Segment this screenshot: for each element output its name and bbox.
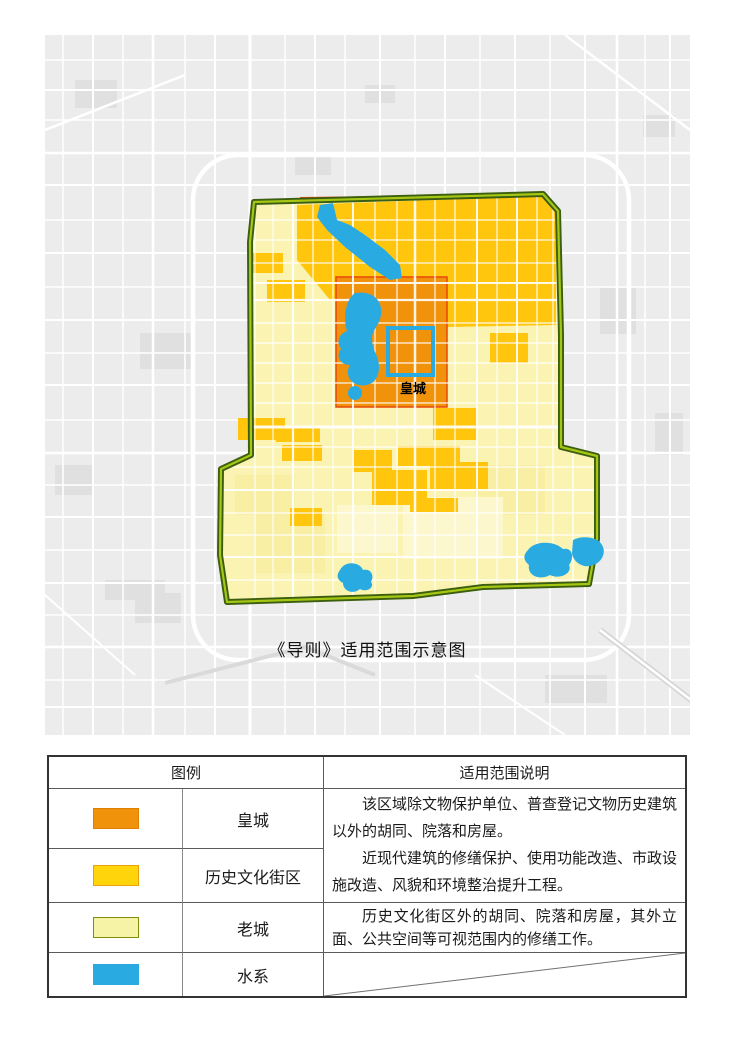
legend-label-imperial-city: 皇城 bbox=[237, 807, 269, 831]
swatch-cell-water bbox=[49, 953, 183, 996]
map-caption: 《导则》适用范围示意图 bbox=[45, 636, 690, 661]
description-paragraph-2: 近现代建筑的修缮保护、使用功能改造、市政设施改造、风貌和环境整治提升工程。 bbox=[332, 846, 677, 900]
legend-table: 图例 适用范围说明 皇城 历史文化街区 老城 水系 该区域除文物保护单位、普查登… bbox=[47, 755, 687, 998]
legend-label-historic-district: 历史文化街区 bbox=[205, 864, 301, 888]
map-figure bbox=[45, 35, 690, 735]
swatch-historic-district bbox=[93, 865, 139, 886]
label-cell-water: 水系 bbox=[183, 953, 324, 996]
swatch-cell-old-city bbox=[49, 903, 183, 953]
label-cell-historic-district: 历史文化街区 bbox=[183, 849, 324, 903]
header-cell-legend: 图例 bbox=[49, 757, 324, 789]
legend-label-water: 水系 bbox=[237, 963, 269, 987]
label-cell-old-city: 老城 bbox=[183, 903, 324, 953]
empty-cell-water-description bbox=[324, 953, 685, 996]
swatch-water bbox=[93, 964, 139, 985]
header-cell-description: 适用范围说明 bbox=[324, 757, 685, 789]
description-cell-imperial-and-districts: 该区域除文物保护单位、普查登记文物历史建筑以外的胡同、院落和房屋。 近现代建筑的… bbox=[324, 789, 685, 903]
label-cell-imperial-city: 皇城 bbox=[183, 789, 324, 849]
diagonal-line bbox=[324, 953, 685, 996]
description-paragraph-1: 该区域除文物保护单位、普查登记文物历史建筑以外的胡同、院落和房屋。 bbox=[332, 792, 677, 846]
swatch-cell-historic-district bbox=[49, 849, 183, 903]
legend-label-old-city: 老城 bbox=[237, 916, 269, 940]
description-paragraph-3: 历史文化街区外的胡同、院落和房屋，其外立面、公共空间等可视范围内的修缮工作。 bbox=[332, 906, 677, 952]
swatch-cell-imperial-city bbox=[49, 789, 183, 849]
swatch-old-city bbox=[93, 917, 139, 938]
beijing-old-city-map bbox=[45, 35, 690, 735]
imperial-city-label: 皇城 bbox=[383, 378, 443, 397]
description-cell-old-city: 历史文化街区外的胡同、院落和房屋，其外立面、公共空间等可视范围内的修缮工作。 bbox=[324, 903, 685, 953]
swatch-imperial-city bbox=[93, 808, 139, 829]
